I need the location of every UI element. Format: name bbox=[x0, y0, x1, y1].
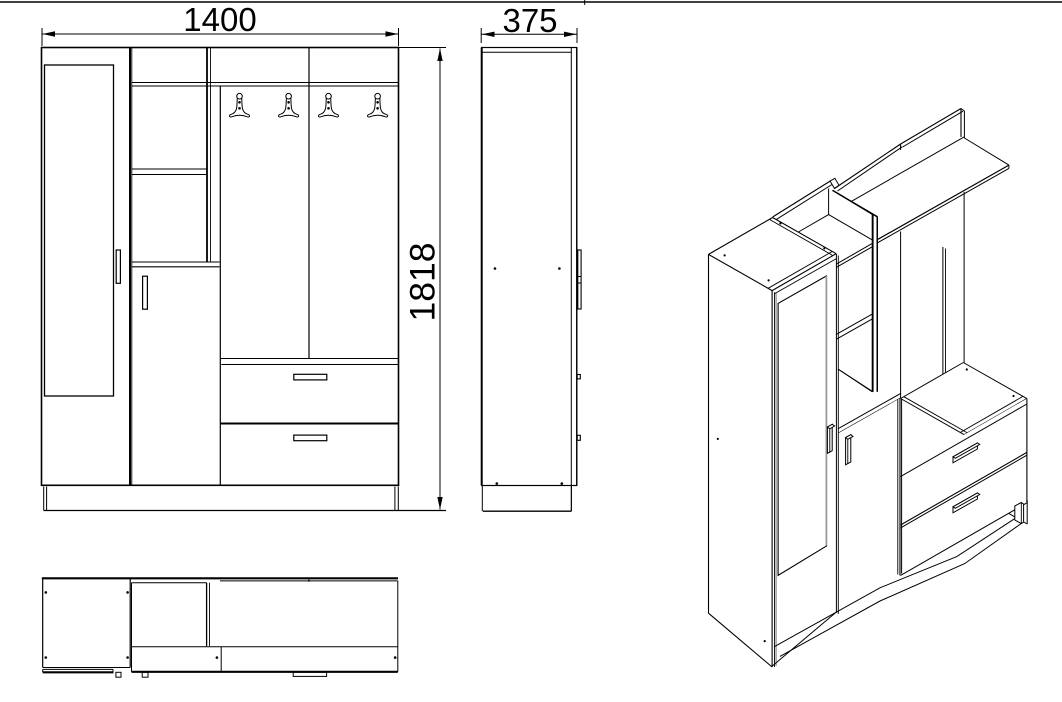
svg-text:1400: 1400 bbox=[183, 1, 256, 38]
svg-text:375: 375 bbox=[502, 2, 557, 39]
svg-text:1818: 1818 bbox=[403, 243, 443, 322]
